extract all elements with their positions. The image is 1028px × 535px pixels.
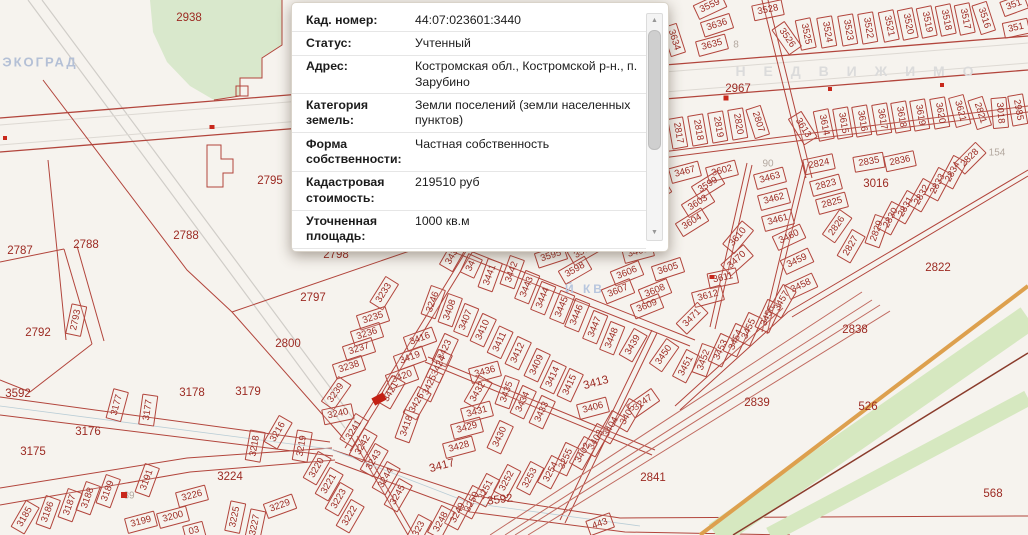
field-label: Категория земель: (306, 98, 410, 129)
field-label: Кадастровая стоимость: (306, 175, 410, 206)
popup-row: Форма собственности:Частная собственност… (292, 133, 646, 172)
parcel-point-marker[interactable] (210, 125, 215, 129)
field-value: Учтенный (410, 36, 642, 51)
parcel-point-marker[interactable] (724, 96, 729, 101)
field-label: Статус: (306, 36, 410, 51)
scroll-down-button[interactable]: ▼ (647, 227, 662, 239)
popup-row: Адрес:Костромская обл., Костромской р-н.… (292, 56, 646, 95)
field-value: 44:07:023601:3440 (410, 13, 642, 28)
field-value: 1000 кв.м (410, 214, 642, 245)
popup-row: Статус:Учтенный (292, 32, 646, 55)
popup-row: Категория земель:Земли поселений (земли … (292, 94, 646, 133)
popup-scrollbar[interactable]: ▲ ▼ (646, 13, 663, 241)
parcel-point-marker[interactable] (710, 275, 715, 279)
parcel-info-popup: Кад. номер:44:07:023601:3440Статус:Учтен… (291, 2, 669, 252)
field-label: Форма собственности: (306, 137, 410, 168)
field-label: Адрес: (306, 59, 410, 90)
popup-row: Уточненная площадь:1000 кв.м (292, 211, 646, 250)
field-value: Костромская обл., Костромской р-н., п. З… (410, 59, 642, 90)
popup-row: Кад. номер:44:07:023601:3440 (292, 9, 646, 32)
scroll-up-button[interactable]: ▲ (647, 15, 662, 27)
field-value: 219510 руб (410, 175, 642, 206)
cadastral-map-view: ЭКОГРАДН Е Д В И Ж И М ОЙ КВ 35593636363… (0, 0, 1028, 535)
popup-row: Кадастровая стоимость:219510 руб (292, 172, 646, 211)
field-value: Земли поселений (земли населенных пункто… (410, 98, 642, 129)
parcel-point-marker[interactable] (3, 136, 7, 140)
selected-parcel-highlight[interactable] (371, 392, 386, 405)
field-label: Кад. номер: (306, 13, 410, 28)
parcel-point-marker[interactable] (828, 87, 832, 91)
scrollbar-thumb[interactable] (648, 30, 661, 150)
popup-rows: Кад. номер:44:07:023601:3440Статус:Учтен… (292, 9, 646, 252)
field-label: Уточненная площадь: (306, 214, 410, 245)
parcel-point-marker[interactable] (940, 83, 944, 87)
parcel-point-marker[interactable] (121, 492, 127, 498)
field-value: Частная собственность (410, 137, 642, 168)
popup-row: Для индивидуального жилищного (292, 249, 646, 252)
